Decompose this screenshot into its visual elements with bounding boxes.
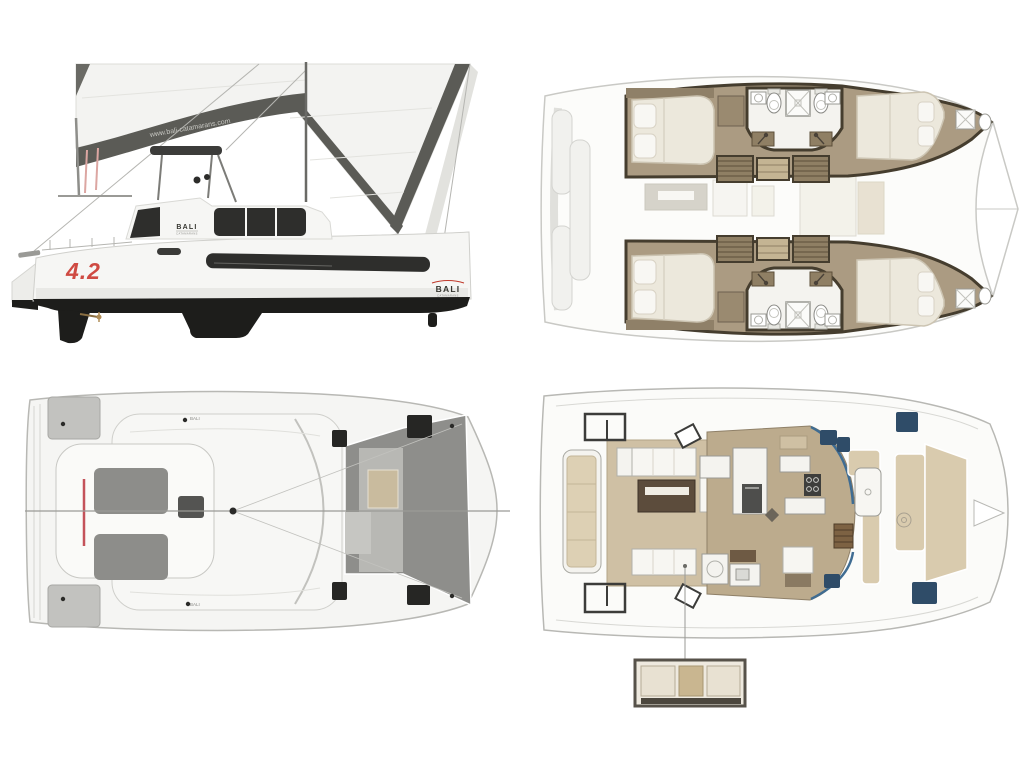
seat-base-teak bbox=[785, 574, 811, 587]
flybridge-sunpad-2 bbox=[94, 534, 168, 580]
shower-icon bbox=[786, 90, 810, 116]
skeg-keel bbox=[182, 313, 262, 338]
foredeck-notch bbox=[345, 512, 371, 554]
saloon-floor bbox=[707, 426, 855, 600]
coachroof: BALI CATAMARANS bbox=[126, 198, 332, 239]
wardrobe bbox=[718, 96, 744, 126]
galley-counter-aft bbox=[700, 456, 730, 478]
toilet-icon bbox=[767, 89, 781, 113]
sideboard-dark bbox=[730, 550, 756, 562]
counter-fwd bbox=[785, 498, 825, 514]
stern-logo-text: BALI bbox=[436, 284, 461, 294]
settee-ghost bbox=[858, 182, 884, 234]
helm-console bbox=[178, 496, 204, 518]
platform-cushion bbox=[641, 666, 675, 696]
rudder bbox=[428, 313, 437, 327]
pillow-fwd-2 bbox=[918, 126, 934, 146]
fwd-table bbox=[855, 468, 881, 516]
fwd-bench-bow bbox=[925, 444, 967, 582]
pillow-fwd bbox=[918, 102, 934, 122]
mast-foot bbox=[230, 508, 237, 515]
helm-figure-2 bbox=[204, 174, 210, 180]
bow-basin bbox=[979, 114, 991, 130]
flybridge-sunpad bbox=[94, 468, 168, 514]
helm-figure bbox=[194, 177, 201, 184]
staircase bbox=[717, 156, 829, 182]
cockpit-seat-end bbox=[617, 448, 632, 476]
flybridge-bimini bbox=[150, 146, 236, 202]
coachroof-side-glass bbox=[214, 208, 306, 236]
cockpit-bench-aft bbox=[632, 549, 696, 575]
galley-sink bbox=[736, 569, 749, 580]
hull-mark-port-text: BALI bbox=[190, 416, 200, 421]
bow-model-text: 4.2 bbox=[65, 258, 101, 284]
cockpit-sofa bbox=[632, 448, 696, 476]
saloon bbox=[700, 426, 855, 600]
stern-logo-sub: CATAMARANS bbox=[437, 294, 459, 298]
coachroof-logo-sub: CATAMARANS bbox=[176, 232, 198, 236]
pillow-2 bbox=[634, 134, 656, 158]
aft-cabin-bed bbox=[626, 88, 714, 164]
fridge-ghost bbox=[713, 180, 747, 216]
stove bbox=[804, 474, 821, 496]
panel-accommodation-plan bbox=[512, 0, 1024, 384]
cockpit-table bbox=[638, 480, 695, 512]
coachroof-logo-group: BALI CATAMARANS bbox=[176, 224, 198, 236]
accommodation-plan-svg bbox=[512, 0, 1024, 384]
coachroof-logo-text: BALI bbox=[176, 224, 197, 231]
galley-sink-ghost bbox=[658, 191, 694, 200]
panel-side-profile-render: www.bali-catamarans.com bbox=[0, 0, 512, 384]
fwd-lounge-column bbox=[895, 454, 925, 551]
flybridge-top bbox=[56, 444, 214, 580]
deck-top-render-svg: BALI BALI bbox=[0, 384, 512, 768]
platform-cushion-2 bbox=[707, 666, 740, 696]
starboard-hull: 4.2 BALI CATAMARANS bbox=[18, 232, 471, 301]
side-profile-svg: www.bali-catamarans.com bbox=[0, 0, 512, 384]
main-deck-plan-svg bbox=[512, 384, 1024, 768]
platform-edge bbox=[641, 698, 741, 704]
overhead-cabinet bbox=[780, 436, 807, 449]
nav-cabinet-ghost bbox=[800, 174, 856, 236]
hull-mark-starboard-text: BALI bbox=[190, 602, 200, 607]
foredeck-table bbox=[368, 470, 398, 508]
bowsprit-fitting bbox=[18, 250, 40, 258]
utility-corner bbox=[702, 550, 760, 586]
davit-point bbox=[683, 564, 687, 568]
panel-main-deck-plan bbox=[512, 384, 1024, 768]
companionway-steps bbox=[834, 524, 853, 548]
cabinet-ghost bbox=[752, 186, 774, 216]
pillow bbox=[634, 104, 656, 128]
saloon-seat-fwd bbox=[783, 547, 813, 573]
bow-compartment bbox=[956, 110, 991, 130]
underwater-hull bbox=[33, 297, 470, 343]
panel-deck-top-render: BALI BALI bbox=[0, 384, 512, 768]
hull-vent bbox=[157, 248, 181, 255]
catamaran-four-view-composite: www.bali-catamarans.com bbox=[0, 0, 1024, 768]
worktop bbox=[780, 456, 810, 472]
platform-hatch bbox=[679, 666, 703, 696]
cockpit-table-slat bbox=[645, 487, 689, 495]
